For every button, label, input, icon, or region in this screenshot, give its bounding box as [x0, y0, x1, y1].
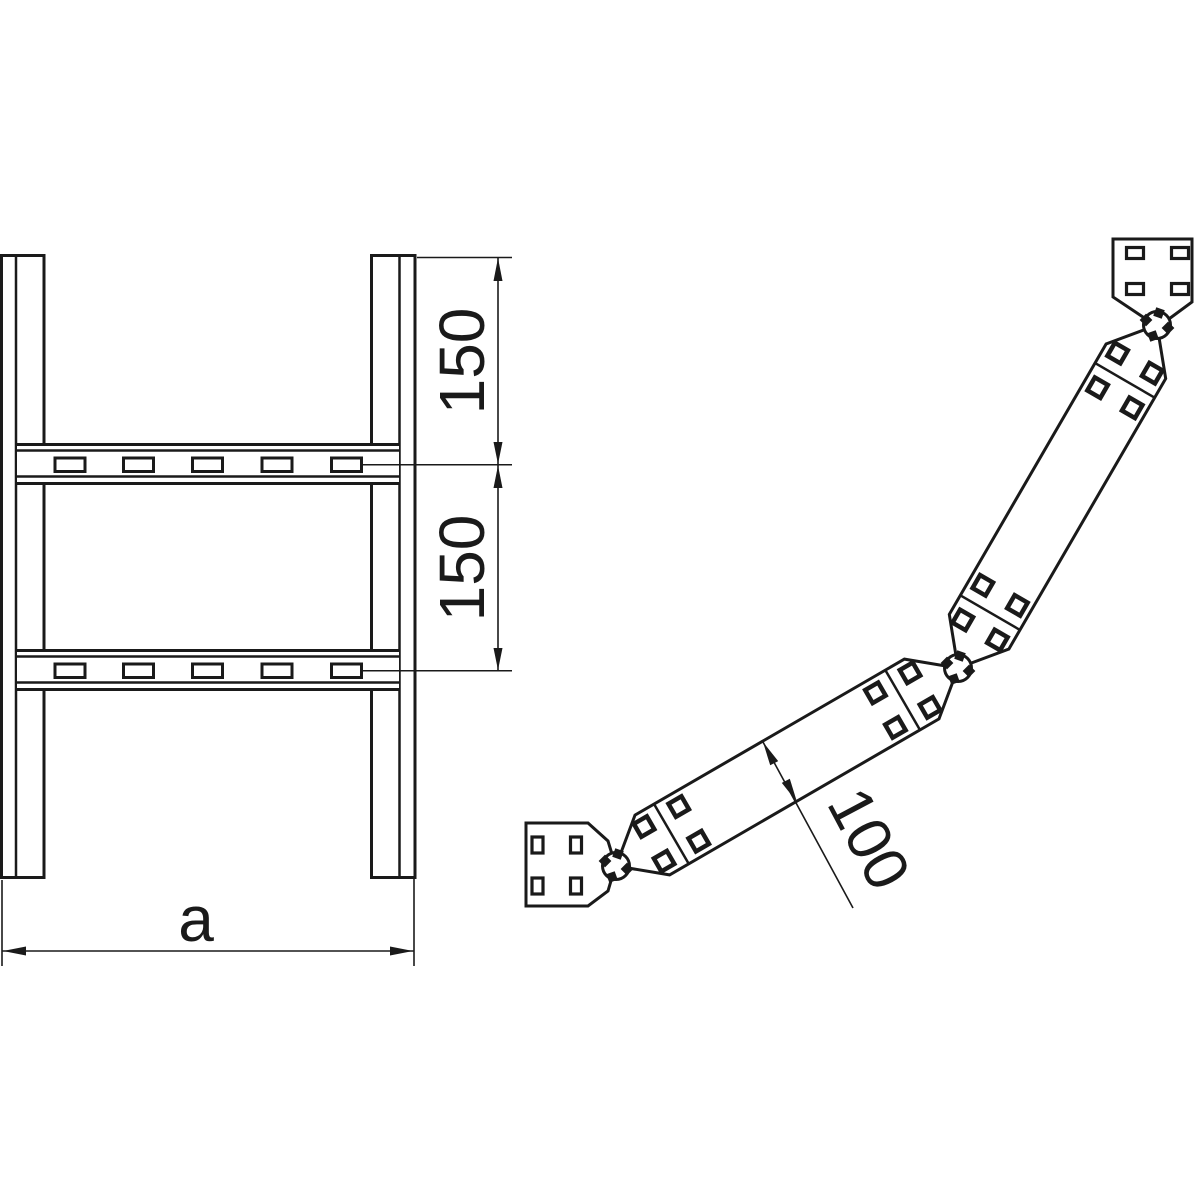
slot — [262, 458, 292, 472]
dim-label-150-lower: 150 — [426, 515, 498, 622]
slot — [332, 664, 362, 678]
slot — [124, 458, 154, 472]
slot — [124, 664, 154, 678]
rail-right — [372, 256, 416, 878]
cable-ladder-drawing: 150 150 a — [0, 0, 1200, 1200]
slot — [55, 458, 85, 472]
slot — [193, 458, 223, 472]
side-view: 100 — [526, 239, 1192, 908]
arrow-down-icon — [494, 442, 503, 464]
arrow-left-icon — [3, 947, 26, 956]
segment-upper — [949, 325, 1165, 668]
slot — [193, 664, 223, 678]
rung-lower — [16, 651, 400, 690]
dim-label-100: 100 — [814, 777, 923, 901]
slot — [262, 664, 292, 678]
dim-label-150-upper: 150 — [426, 308, 498, 415]
arrow-up-icon — [494, 258, 503, 281]
front-view: 150 150 a — [2, 256, 513, 967]
technical-drawing-page: 150 150 a — [0, 0, 1200, 1200]
arrow-up-icon — [494, 466, 503, 489]
arrow-down-icon — [494, 648, 503, 670]
arrow-right-icon — [390, 947, 413, 956]
rail-left — [2, 256, 45, 878]
slot — [55, 664, 85, 678]
rung-upper — [16, 445, 400, 484]
dim-label-a: a — [178, 883, 214, 955]
slot — [332, 458, 362, 472]
